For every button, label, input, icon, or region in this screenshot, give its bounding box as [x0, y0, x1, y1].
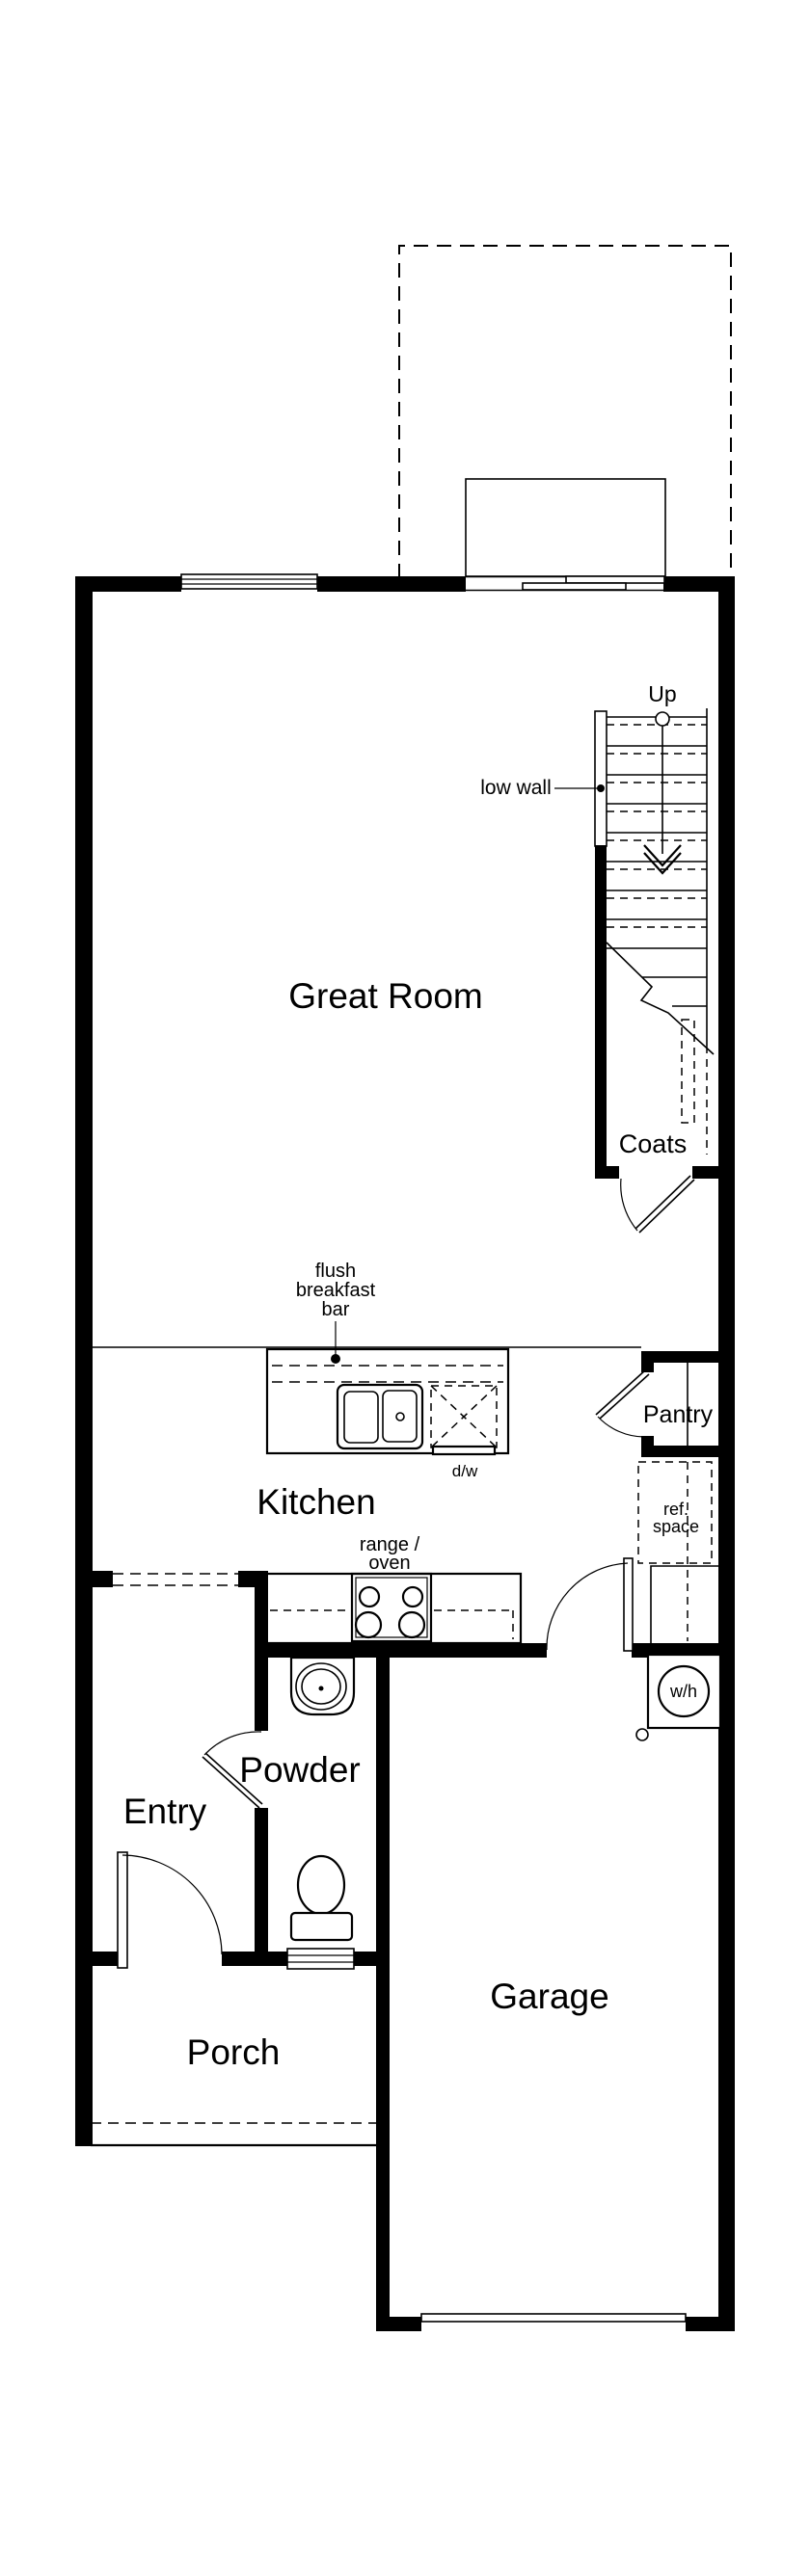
great-room-window [181, 574, 317, 589]
porch-wall-seg-2 [222, 1952, 287, 1966]
coats-wall-stub-left [595, 1166, 619, 1179]
exterior-wall-top-1 [75, 576, 181, 592]
porch-wall-seg-1 [93, 1952, 119, 1966]
toilet [291, 1856, 352, 1940]
floor-plan-page: Great Room Kitchen Entry Powder Porch Ga… [0, 0, 810, 2576]
garage-south-stub-right [686, 2317, 735, 2331]
stair-direction-origin [656, 712, 669, 726]
garage-entry-door [547, 1558, 633, 1651]
exterior-wall-top-2 [317, 576, 466, 592]
coats-door [621, 1176, 694, 1233]
dishwasher-label: d/w [452, 1462, 478, 1480]
floor-drain [636, 1729, 648, 1740]
ref-space-callout: ref. space [653, 1500, 699, 1536]
pantry-stub-top [641, 1351, 654, 1372]
ref-space-line-1: ref. [663, 1500, 688, 1519]
flush-bar-line-1: flush [315, 1261, 356, 1282]
range-oven-line-2: oven [368, 1553, 410, 1574]
powder-window [287, 1949, 354, 1969]
great-room-label: Great Room [288, 976, 483, 1016]
front-door [118, 1852, 222, 1968]
flush-bar-line-3: bar [322, 1299, 350, 1320]
garage-south-stub-left [376, 2317, 421, 2331]
kitchen-label: Kitchen [256, 1482, 375, 1522]
up-label: Up [648, 681, 676, 706]
entry-opening-block-left [93, 1571, 113, 1587]
stair-arrow-icon [644, 853, 681, 873]
pantry-label: Pantry [643, 1401, 714, 1428]
exterior-wall-left [75, 576, 93, 2146]
garage-door [421, 2314, 686, 2322]
powder-label: Powder [239, 1750, 360, 1790]
staircase [595, 708, 714, 1155]
low-wall-label: low wall [480, 777, 552, 799]
garage-label: Garage [490, 1977, 608, 2016]
powder-sink [291, 1658, 354, 1714]
sliding-patio-door [466, 576, 664, 591]
exterior-wall-right [718, 576, 735, 2331]
coats-wall-stub-right [692, 1166, 718, 1179]
porch-wall-seg-3 [354, 1952, 390, 1966]
entry-powder-wall-lower [255, 1808, 268, 1953]
range-oven-callout: range / oven [360, 1534, 420, 1574]
kitchen-sink [337, 1385, 422, 1448]
stair-side-wall [595, 845, 607, 1167]
water-heater-label: w/h [669, 1682, 697, 1701]
exterior-wall-top-3 [663, 576, 735, 592]
flush-bar-leader-dot [331, 1354, 340, 1364]
stair-treads [607, 717, 707, 1006]
range-counter [265, 1574, 521, 1643]
kitchen-island [267, 1349, 508, 1454]
low-wall-callout: low wall [480, 777, 605, 799]
porch-label: Porch [187, 2032, 281, 2072]
pantry-door [596, 1370, 649, 1437]
entry-label: Entry [123, 1792, 207, 1831]
floor-plan-drawing: Great Room Kitchen Entry Powder Porch Ga… [0, 0, 810, 2576]
pantry-stub-bottom [641, 1436, 654, 1447]
garage-west-wall [376, 1645, 390, 2319]
coats-label: Coats [619, 1129, 688, 1158]
stair-low-wall [595, 711, 607, 846]
kitchen-south-wall-left [255, 1643, 547, 1658]
flush-bar-line-2: breakfast [296, 1280, 376, 1301]
ref-space-line-2: space [653, 1517, 699, 1536]
counter-beside-ref [651, 1566, 721, 1643]
stair-break-line [607, 943, 714, 1054]
low-wall-leader-dot [597, 784, 605, 792]
rear-stoop [466, 479, 665, 576]
